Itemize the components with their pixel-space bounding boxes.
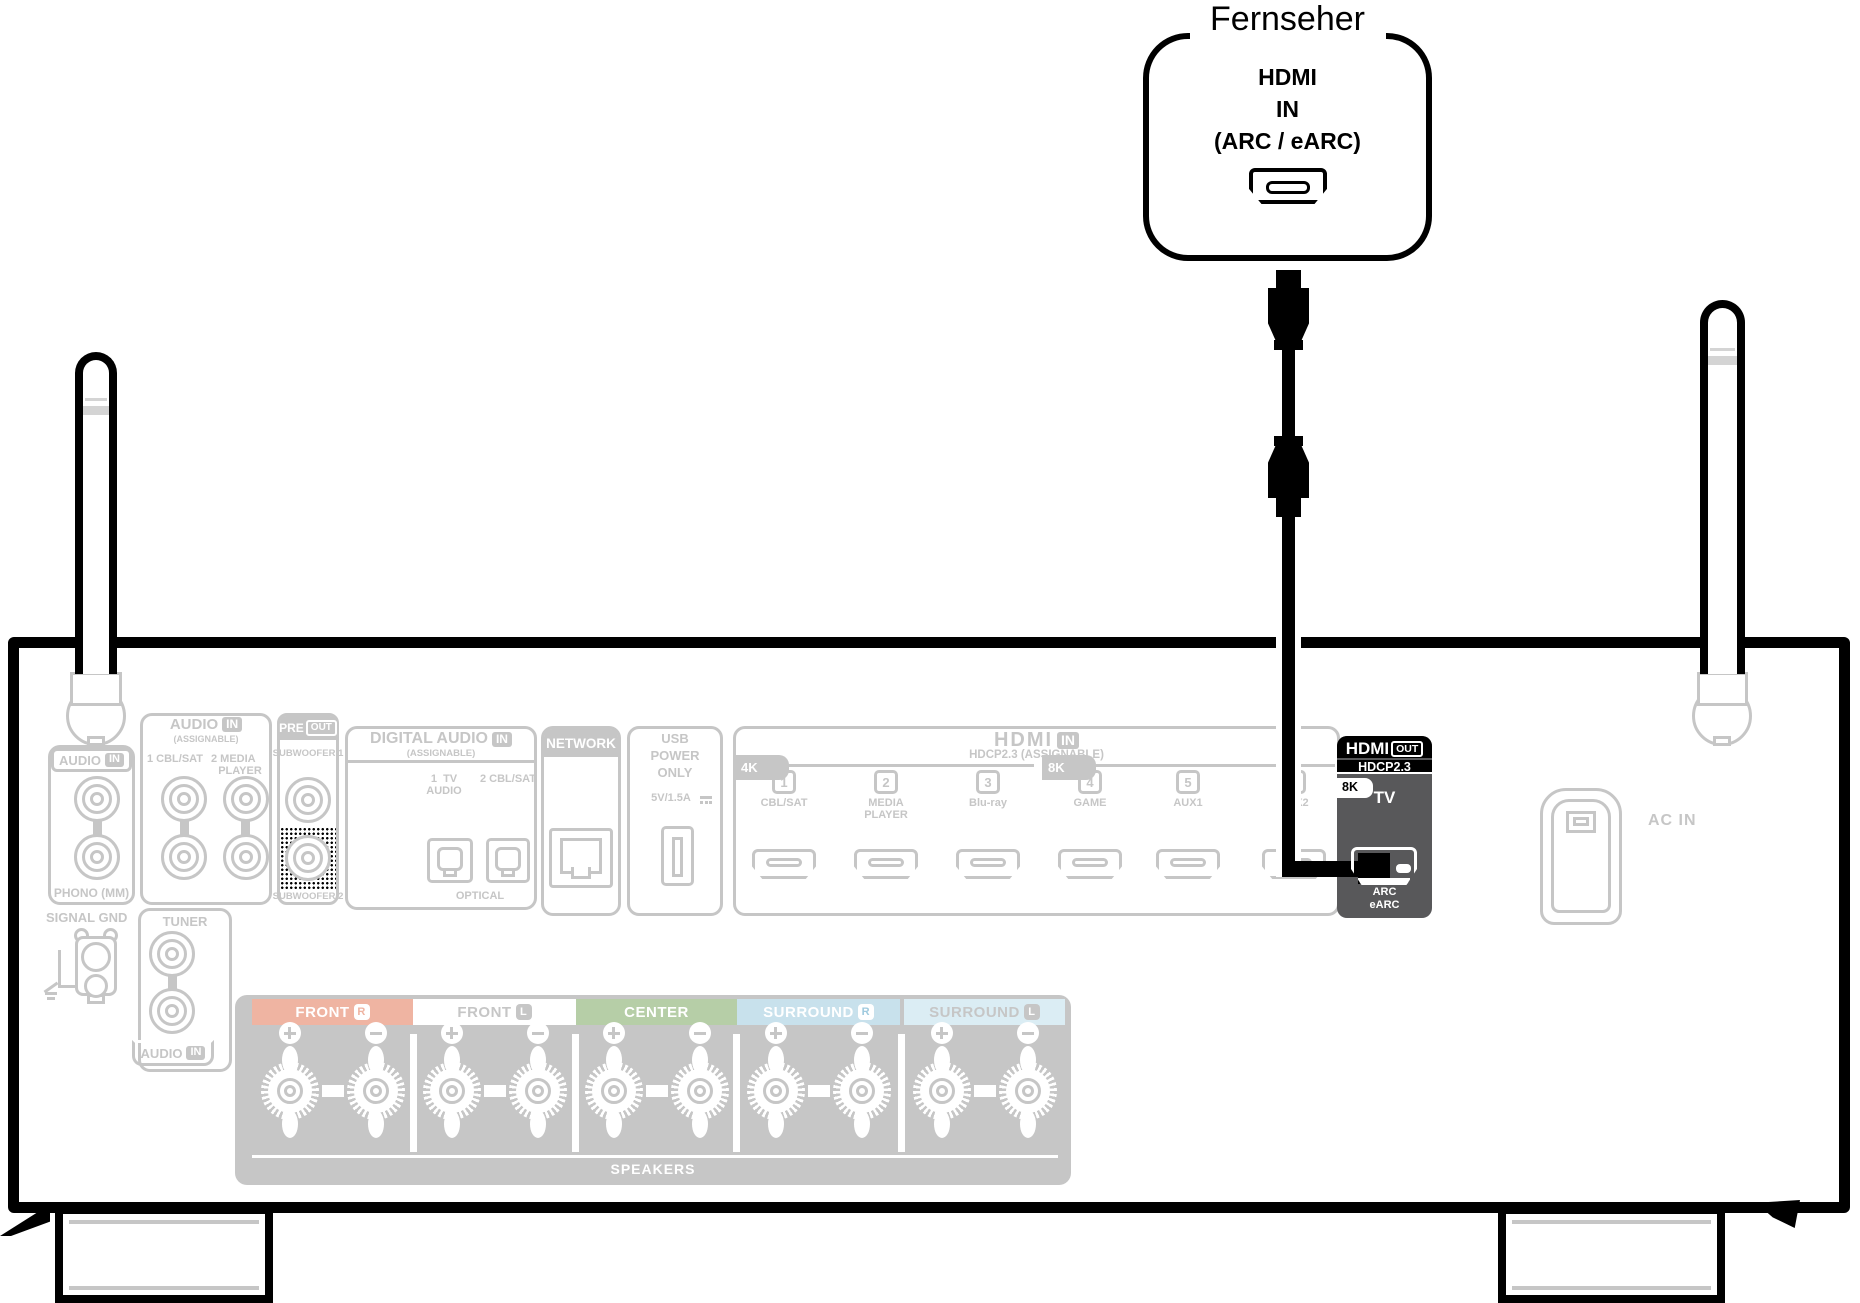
- hdmi-out-hdcp: HDCP2.3: [1337, 760, 1432, 774]
- hdmi-plug-top-body: [1268, 288, 1309, 340]
- speaker-terminal-center: [856, 1085, 868, 1097]
- pm-bar: [694, 1032, 706, 1035]
- terminal-pair-bar: [646, 1085, 668, 1097]
- pm-bar: [532, 1032, 544, 1035]
- hdmi-port-label: CBL/SAT: [739, 797, 829, 809]
- digital-label-audio: AUDIO: [418, 785, 470, 797]
- pm-bar: [940, 1027, 943, 1039]
- hdmi-plug-top-tab: [1276, 270, 1301, 289]
- pm-bar: [450, 1027, 453, 1039]
- hdmi-port-icon: [956, 849, 1020, 879]
- rca-jack: [239, 792, 253, 806]
- antenna-base-left: [70, 672, 122, 706]
- hdmi-out-tv-label: TV: [1337, 788, 1432, 808]
- hdmi-in-sub-header: HDCP2.3 (ASSIGNABLE): [733, 749, 1340, 761]
- digital-audio-divider: [348, 760, 534, 763]
- speaker-band-front-r: FRONTR: [252, 999, 413, 1025]
- preout-header: PREOUT: [280, 716, 336, 740]
- speaker-channel-badge: R: [354, 1004, 370, 1020]
- rca-jack: [165, 1004, 179, 1018]
- audio-in-col2-label: 2 MEDIA: [211, 753, 269, 765]
- hdmi-plug-bottom-tab: [1276, 498, 1301, 517]
- speaker-band-surround-l: SURROUNDL: [904, 999, 1065, 1025]
- speakers-divider: [410, 1034, 417, 1152]
- hdmi-port-slot: [1170, 858, 1206, 867]
- subwoofer2-label: SUBWOOFER 2: [272, 891, 344, 902]
- hdmi-port-number: 2: [874, 770, 898, 794]
- receiver-foot-right: [1498, 1206, 1725, 1303]
- speakers-divider: [898, 1034, 905, 1152]
- ac-in-label: AC IN: [1648, 812, 1697, 830]
- hdmi-plug-top-neck: [1274, 340, 1303, 350]
- hdmi-out-header: HDMIOUT: [1337, 736, 1432, 758]
- terminal-pair-bar: [808, 1085, 830, 1097]
- rca-jack: [301, 793, 315, 807]
- optical-label: OPTICAL: [430, 890, 530, 902]
- terminal-pair-bar: [974, 1085, 996, 1097]
- dc-symbol-icon: [700, 796, 712, 799]
- usb-line3: ONLY: [627, 765, 723, 780]
- phono-header: AUDIOIN: [51, 748, 132, 772]
- speaker-terminal-center: [284, 1085, 296, 1097]
- hdmi-port-icon: [1058, 849, 1122, 879]
- hdmi-out-arc-label: ARC: [1337, 886, 1432, 898]
- hdmi-port-icon: [1156, 849, 1220, 879]
- hdmi-port-icon: [752, 849, 816, 879]
- speaker-channel-badge: R: [858, 1004, 874, 1020]
- phono-header-audio: AUDIO: [59, 753, 101, 768]
- digital-label-2cblsat: 2 CBL/SAT: [478, 773, 538, 785]
- ac-inlet-icon: [1540, 788, 1622, 925]
- speaker-band-surround-r: SURROUNDR: [737, 999, 900, 1025]
- antenna-rod-right: [1700, 300, 1745, 674]
- subwoofer1-label: SUBWOOFER 1: [272, 748, 344, 759]
- optical-port-icon: [486, 838, 530, 883]
- rca-jack: [177, 850, 191, 864]
- pm-bar: [774, 1027, 777, 1039]
- speaker-terminal-center: [1022, 1085, 1034, 1097]
- hdmi-port-label: MEDIA: [841, 797, 931, 809]
- section-hdmi-out: HDMIOUT HDCP2.3 8K TV ARC eARC: [1337, 736, 1432, 918]
- hdmi-port-icon: [854, 849, 918, 879]
- rca-jack: [301, 851, 315, 865]
- hdmi-port-label: GAME: [1045, 797, 1135, 809]
- audio-in-header: AUDIOIN: [140, 716, 272, 733]
- hdmi-port-number: 4: [1078, 770, 1102, 794]
- ethernet-port-icon: [549, 828, 613, 888]
- hdmi-out-port-icon: [1351, 847, 1417, 885]
- tv-title: Fernseher: [1143, 0, 1432, 39]
- speaker-band-label: FRONT: [457, 1004, 511, 1021]
- hdmi-port-label: PLAYER: [841, 809, 931, 821]
- usb-line2: POWER: [627, 748, 723, 763]
- digital-audio-header: DIGITAL AUDIOIN: [345, 730, 537, 748]
- phono-label: PHONO (MM): [44, 886, 139, 900]
- rca-jack: [165, 947, 179, 961]
- speakers-label: SPEAKERS: [235, 1161, 1071, 1177]
- tuner-audio-in-bracket: AUDIOIN: [132, 1040, 214, 1066]
- speaker-terminal-center: [770, 1085, 782, 1097]
- speaker-band-label: SURROUND: [929, 1004, 1020, 1021]
- tuner-title: TUNER: [138, 914, 232, 929]
- digital-audio-assignable: (ASSIGNABLE): [345, 748, 537, 759]
- tv-hdmi-label: HDMI: [1143, 64, 1432, 91]
- speaker-band-center: CENTER: [576, 999, 737, 1025]
- hdmi-plug-bottom-body: [1268, 446, 1309, 498]
- digital-label-1tv: 1 TV: [418, 773, 470, 785]
- gnd-terminal-post: [84, 974, 108, 998]
- pm-bar: [288, 1027, 291, 1039]
- gnd-terminal-knob: [81, 942, 111, 972]
- hdmi-plug-bottom-neck: [1274, 436, 1303, 446]
- hdmi-port-number: 5: [1176, 770, 1200, 794]
- speaker-terminal-center: [370, 1085, 382, 1097]
- hdmi-port-number: 3: [976, 770, 1000, 794]
- speaker-band-label: CENTER: [624, 1004, 689, 1021]
- receiver-foot-left: [55, 1206, 273, 1303]
- tv-hdmi-port-icon: [1249, 168, 1327, 204]
- pm-bar: [856, 1032, 868, 1035]
- speakers-divider: [572, 1034, 579, 1152]
- speaker-band-front-l: FRONTL: [413, 999, 576, 1025]
- audio-in-col2-label2: PLAYER: [211, 765, 269, 777]
- hdmi-4k-line: [778, 764, 1034, 767]
- antenna-hinge-detail-right: [1713, 736, 1731, 746]
- rca-jack: [177, 792, 191, 806]
- pm-bar: [370, 1032, 382, 1035]
- speaker-channel-badge: L: [1024, 1004, 1040, 1020]
- connection-diagram: Fernseher HDMI IN (ARC / eARC): [0, 0, 1860, 1303]
- speaker-channel-badge: L: [516, 1004, 532, 1020]
- audio-in-col1-label: 1 CBL/SAT: [147, 753, 209, 765]
- speaker-terminal-center: [694, 1085, 706, 1097]
- pm-bar: [612, 1027, 615, 1039]
- speaker-terminal-center: [608, 1085, 620, 1097]
- speaker-terminal-center: [532, 1085, 544, 1097]
- hdmi-cable-segment: [1282, 350, 1295, 436]
- network-header: NETWORK: [544, 729, 618, 757]
- antenna-rod-left: [75, 352, 117, 674]
- hdmi-port-slot: [1072, 858, 1108, 867]
- hdmi-port-label: Blu-ray: [943, 797, 1033, 809]
- tv-in-label: IN: [1143, 96, 1432, 123]
- phono-header-in: IN: [105, 753, 124, 767]
- speaker-band-label: FRONT: [295, 1004, 349, 1021]
- chassis-corner-curl-right: [1756, 1200, 1800, 1228]
- hdmi-port-slot: [970, 858, 1006, 867]
- tv-arc-label: (ARC / eARC): [1143, 128, 1432, 155]
- hdmi-port-slot: [868, 858, 904, 867]
- hdmi-port-label: AUX1: [1143, 797, 1233, 809]
- optical-port-icon: [427, 838, 473, 883]
- usb-port-icon: [661, 826, 694, 886]
- speaker-terminal-center: [936, 1085, 948, 1097]
- hdmi-port-number: 1: [772, 770, 796, 794]
- gnd-wire-vertical: [58, 950, 61, 988]
- hdmi-port-slot: [766, 858, 802, 867]
- speaker-terminal-center: [446, 1085, 458, 1097]
- hdmi-out-earc-label: eARC: [1337, 899, 1432, 911]
- speaker-band-label: SURROUND: [763, 1004, 854, 1021]
- antenna-base-right: [1697, 672, 1748, 706]
- rca-jack: [90, 792, 104, 806]
- speakers-bottom-line: [252, 1155, 1058, 1158]
- cable-route-vertical: [1276, 517, 1301, 877]
- usb-line1: USB: [627, 731, 723, 746]
- rca-jack: [239, 850, 253, 864]
- rca-jack: [90, 850, 104, 864]
- terminal-pair-bar: [322, 1085, 344, 1097]
- pm-bar: [1022, 1032, 1034, 1035]
- terminal-pair-bar: [484, 1085, 506, 1097]
- speakers-divider: [733, 1034, 740, 1152]
- audio-in-assignable: (ASSIGNABLE): [140, 734, 272, 744]
